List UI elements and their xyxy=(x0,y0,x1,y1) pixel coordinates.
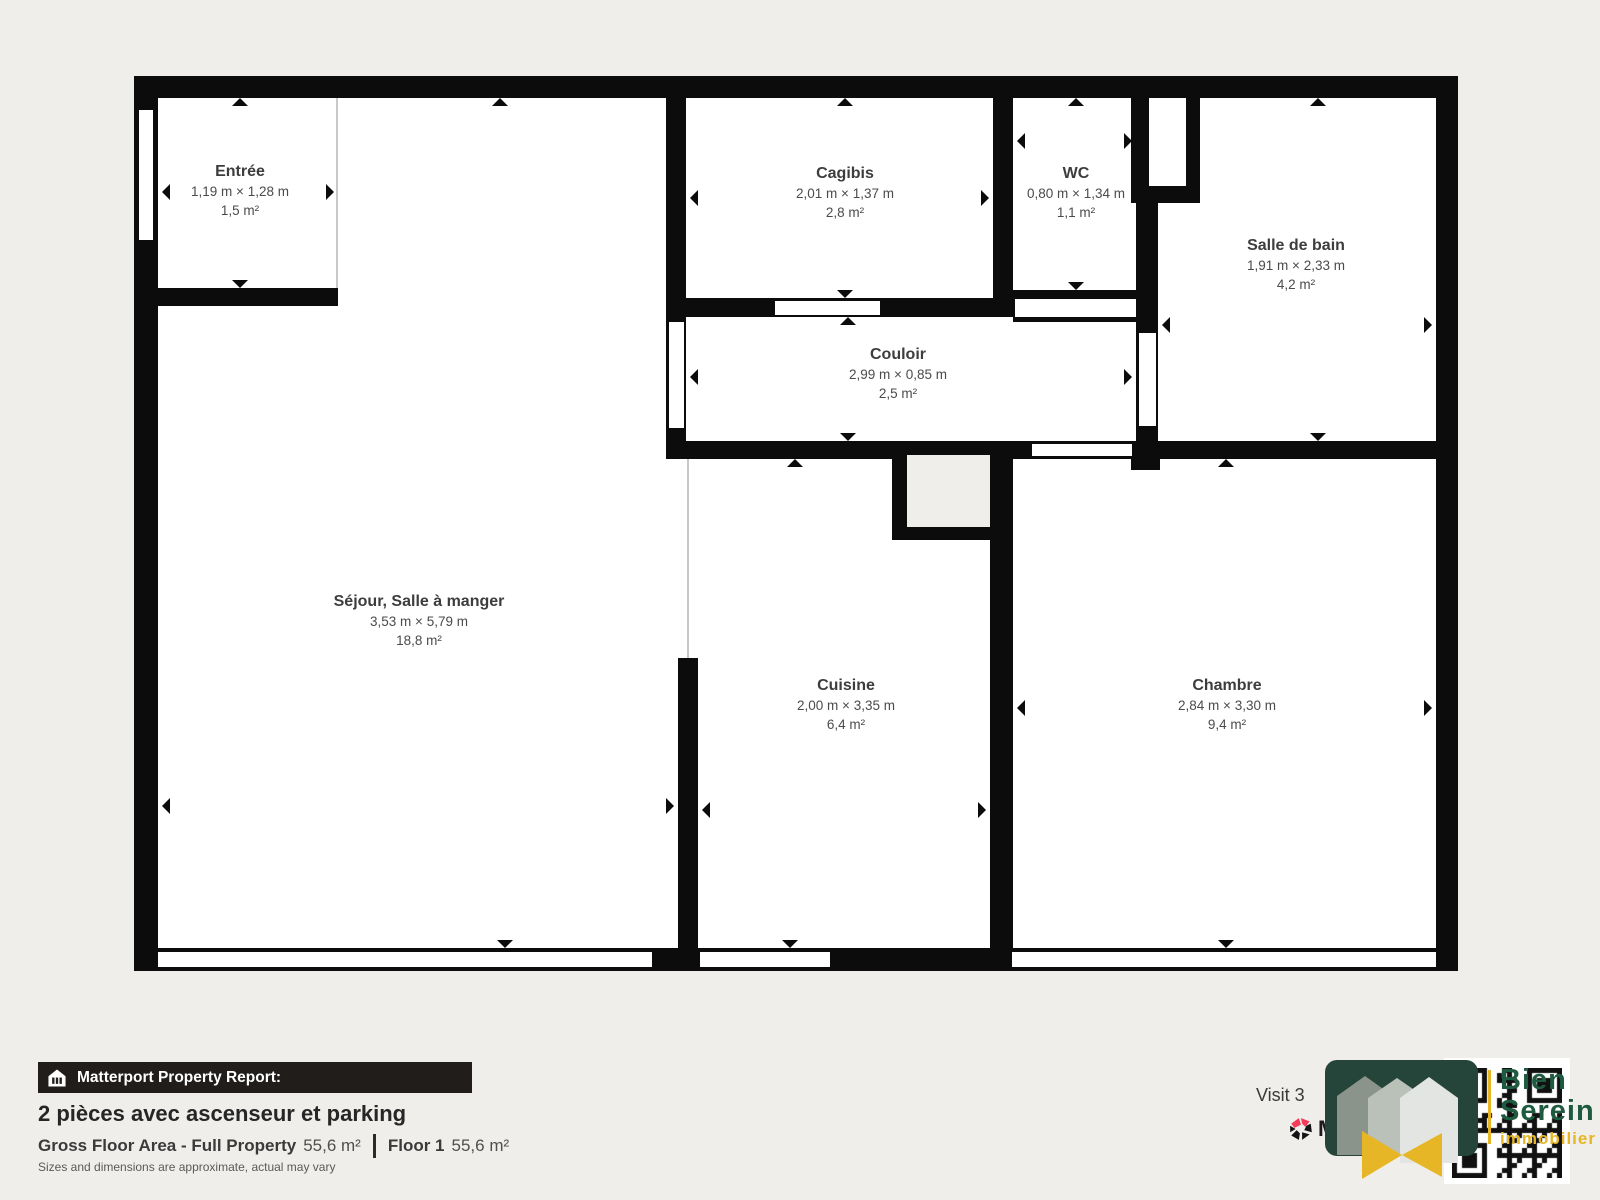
cagibis-door xyxy=(775,301,880,315)
measure-arrow-right-icon xyxy=(981,190,989,206)
matterport-pinwheel-icon xyxy=(1288,1116,1314,1142)
window-cuisine xyxy=(700,952,830,967)
measure-arrow-left-icon xyxy=(1017,700,1025,716)
agency-name: Bien Serein immobilier xyxy=(1500,1066,1596,1147)
room-area: 1,5 m² xyxy=(191,201,289,220)
room-dimensions: 2,84 m × 3,30 m xyxy=(1178,696,1276,715)
floor-area-line: Gross Floor Area - Full Property 55,6 m²… xyxy=(38,1134,509,1158)
room-name: Entrée xyxy=(191,162,289,182)
sdb-door xyxy=(1139,333,1156,426)
divider xyxy=(373,1134,376,1158)
room-name: Séjour, Salle à manger xyxy=(334,592,505,612)
visit-3d-text: Visit 3 xyxy=(1256,1085,1305,1106)
measure-arrow-left-icon xyxy=(690,190,698,206)
measure-arrow-up-icon xyxy=(232,98,248,106)
room-dimensions: 1,91 m × 2,33 m xyxy=(1247,256,1345,275)
measure-arrow-up-icon xyxy=(1068,98,1084,106)
measure-arrow-right-icon xyxy=(1424,317,1432,333)
measure-arrow-left-icon xyxy=(162,798,170,814)
measure-arrow-down-icon xyxy=(1218,940,1234,948)
shaft-pocket xyxy=(1149,98,1186,186)
page: Entrée1,19 m × 1,28 m1,5 m²Cagibis2,01 m… xyxy=(0,0,1600,1200)
agency-name-line1: Bien xyxy=(1500,1066,1596,1095)
gross-floor-area-label: Gross Floor Area - Full Property xyxy=(38,1136,296,1156)
room-label-chambre: Chambre2,84 m × 3,30 m9,4 m² xyxy=(1178,676,1276,734)
measure-arrow-right-icon xyxy=(1424,700,1432,716)
room-name: Salle de bain xyxy=(1247,236,1345,256)
measure-arrow-left-icon xyxy=(702,802,710,818)
sejour-cuisine-open-boundary xyxy=(687,459,689,658)
measure-arrow-up-icon xyxy=(787,459,803,467)
measure-arrow-down-icon xyxy=(232,280,248,288)
measure-arrow-left-icon xyxy=(1162,317,1170,333)
property-title: 2 pièces avec ascenseur et parking xyxy=(38,1101,406,1127)
room-label-salle-de-bain: Salle de bain1,91 m × 2,33 m4,2 m² xyxy=(1247,236,1345,294)
agency-divider-bar xyxy=(1488,1070,1491,1144)
measure-arrow-up-icon xyxy=(492,98,508,106)
room-dimensions: 2,01 m × 1,37 m xyxy=(796,184,894,203)
wall-right xyxy=(1436,76,1458,971)
measure-arrow-left-icon xyxy=(162,184,170,200)
couloir-left-door xyxy=(669,322,684,428)
room-area: 9,4 m² xyxy=(1178,715,1276,734)
room-name: Cuisine xyxy=(797,676,895,696)
entree-window xyxy=(137,108,155,242)
matterport-house-icon xyxy=(48,1069,66,1087)
wall-sejour-cuisine xyxy=(678,658,698,971)
room-dimensions: 1,19 m × 1,28 m xyxy=(191,182,289,201)
measure-arrow-down-icon xyxy=(840,433,856,441)
wc-door xyxy=(1015,299,1136,317)
room-area: 2,5 m² xyxy=(849,384,947,403)
measure-arrow-left-icon xyxy=(690,369,698,385)
wall-sdb-bottom-corner xyxy=(1131,441,1160,470)
agency-name-line3: immobilier xyxy=(1500,1130,1596,1147)
room-label-cuisine: Cuisine2,00 m × 3,35 m6,4 m² xyxy=(797,676,895,734)
report-bar: Matterport Property Report: xyxy=(38,1062,472,1093)
measure-arrow-down-icon xyxy=(1068,282,1084,290)
room-area: 18,8 m² xyxy=(334,631,505,650)
room-dimensions: 3,53 m × 5,79 m xyxy=(334,612,505,631)
window-chambre xyxy=(1012,952,1436,967)
measure-arrow-left-icon xyxy=(1017,133,1025,149)
room-area: 4,2 m² xyxy=(1247,275,1345,294)
measure-arrow-right-icon xyxy=(326,184,334,200)
room-label-cagibis: Cagibis2,01 m × 1,37 m2,8 m² xyxy=(796,164,894,222)
room-name: Couloir xyxy=(849,345,947,365)
report-bar-label: Matterport Property Report: xyxy=(77,1069,281,1087)
room-area: 6,4 m² xyxy=(797,715,895,734)
wall-entree-bottom xyxy=(134,288,338,306)
measure-arrow-down-icon xyxy=(497,940,513,948)
disclaimer-text: Sizes and dimensions are approximate, ac… xyxy=(38,1160,335,1174)
floor-label: Floor 1 xyxy=(388,1136,445,1156)
floor-value: 55,6 m² xyxy=(452,1136,510,1156)
entree-open-boundary xyxy=(336,98,338,288)
room-label-entree: Entrée1,19 m × 1,28 m1,5 m² xyxy=(191,162,289,220)
measure-arrow-down-icon xyxy=(1310,433,1326,441)
room-name: Chambre xyxy=(1178,676,1276,696)
measure-arrow-right-icon xyxy=(1124,369,1132,385)
room-dimensions: 2,99 m × 0,85 m xyxy=(849,365,947,384)
room-name: WC xyxy=(1027,164,1125,184)
agency-name-line2: Serein xyxy=(1500,1097,1596,1126)
wall-wc-divider xyxy=(993,98,1013,300)
room-dimensions: 0,80 m × 1,34 m xyxy=(1027,184,1125,203)
measure-arrow-right-icon xyxy=(1124,133,1132,149)
wall-cuisine-chambre-divider xyxy=(990,441,1013,971)
room-label-couloir: Couloir2,99 m × 0,85 m2,5 m² xyxy=(849,345,947,403)
shaft-void xyxy=(907,455,990,527)
room-area: 1,1 m² xyxy=(1027,203,1125,222)
measure-arrow-down-icon xyxy=(837,290,853,298)
measure-arrow-right-icon xyxy=(666,798,674,814)
chambre-door xyxy=(1032,444,1132,456)
room-name: Cagibis xyxy=(796,164,894,184)
room-label-sejour: Séjour, Salle à manger3,53 m × 5,79 m18,… xyxy=(334,592,505,650)
measure-arrow-up-icon xyxy=(837,98,853,106)
gross-floor-area-value: 55,6 m² xyxy=(303,1136,361,1156)
measure-arrow-up-icon xyxy=(1310,98,1326,106)
measure-arrow-down-icon xyxy=(782,940,798,948)
measure-arrow-right-icon xyxy=(978,802,986,818)
agency-houses-icon xyxy=(1325,1060,1478,1186)
room-dimensions: 2,00 m × 3,35 m xyxy=(797,696,895,715)
room-label-wc: WC0,80 m × 1,34 m1,1 m² xyxy=(1027,164,1125,222)
room-area: 2,8 m² xyxy=(796,203,894,222)
floor-plan: Entrée1,19 m × 1,28 m1,5 m²Cagibis2,01 m… xyxy=(0,0,1600,1200)
window-sejour xyxy=(158,952,652,967)
measure-arrow-up-icon xyxy=(1218,459,1234,467)
measure-arrow-up-icon xyxy=(840,317,856,325)
wall-top xyxy=(134,76,1458,98)
